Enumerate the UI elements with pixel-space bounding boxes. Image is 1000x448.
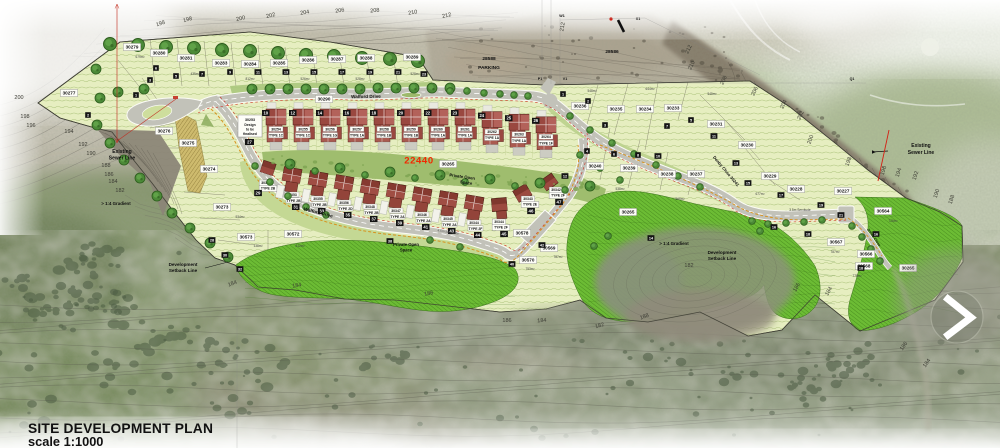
svg-text:30237: 30237 — [690, 172, 703, 177]
svg-text:25: 25 — [506, 116, 511, 121]
svg-text:30257: 30257 — [352, 127, 362, 131]
svg-text:30289: 30289 — [406, 55, 419, 60]
svg-text:28586: 28586 — [605, 49, 619, 55]
svg-text:TYPE 1A: TYPE 1A — [431, 134, 446, 138]
svg-text:30564: 30564 — [877, 209, 890, 214]
svg-text:30288: 30288 — [360, 56, 373, 61]
svg-text:Space: Space — [400, 247, 413, 252]
svg-text:16: 16 — [344, 110, 349, 115]
svg-text:TYPE 2F: TYPE 2F — [494, 226, 508, 230]
svg-text:TYPE 1A: TYPE 1A — [512, 139, 527, 143]
svg-text:30256: 30256 — [325, 127, 335, 131]
svg-text:19: 19 — [368, 70, 372, 74]
svg-text:30344: 30344 — [469, 221, 479, 225]
svg-text:30230: 30230 — [741, 143, 754, 148]
svg-text:16: 16 — [772, 225, 776, 229]
svg-text:TYPE 2F: TYPE 2F — [469, 227, 483, 231]
svg-text:30570: 30570 — [522, 258, 535, 263]
svg-text:545m²: 545m² — [707, 92, 716, 96]
svg-text:30253: 30253 — [245, 118, 255, 122]
svg-text:435m²: 435m² — [190, 72, 199, 76]
svg-text:TYPE 2A: TYPE 2A — [390, 215, 405, 219]
svg-text:787m²: 787m² — [830, 250, 839, 254]
svg-text:812m²: 812m² — [245, 77, 254, 81]
svg-text:15: 15 — [746, 181, 750, 185]
svg-text:30290: 30290 — [318, 97, 331, 102]
svg-text:3: 3 — [604, 123, 606, 127]
svg-text:10: 10 — [656, 154, 660, 158]
svg-text:42: 42 — [540, 243, 544, 247]
svg-text:Existing: Existing — [911, 143, 930, 149]
svg-text:30347: 30347 — [391, 209, 401, 213]
svg-text:Q1: Q1 — [850, 77, 855, 81]
svg-text:18: 18 — [806, 232, 810, 236]
svg-text:27: 27 — [247, 140, 252, 145]
svg-text:528m²: 528m² — [410, 72, 419, 76]
svg-text:17: 17 — [779, 193, 783, 197]
svg-text:1: 1 — [562, 92, 564, 96]
svg-text:30286: 30286 — [302, 58, 315, 63]
svg-text:22440: 22440 — [404, 156, 433, 167]
svg-text:30265: 30265 — [622, 210, 635, 215]
svg-text:TYPE 1A: TYPE 1A — [458, 134, 473, 138]
svg-text:6: 6 — [613, 152, 615, 156]
svg-text:30273: 30273 — [216, 205, 229, 210]
svg-text:30573: 30573 — [240, 235, 253, 240]
svg-text:TYPE 1C: TYPE 1C — [269, 134, 284, 138]
svg-text:30285: 30285 — [273, 61, 286, 66]
svg-text:812m²: 812m² — [295, 244, 304, 248]
svg-text:934m²: 934m² — [235, 215, 244, 219]
svg-text:TYPE 2B: TYPE 2B — [261, 187, 276, 191]
svg-text:30566: 30566 — [860, 252, 873, 257]
svg-text:188: 188 — [101, 163, 110, 169]
svg-text:finalised: finalised — [243, 132, 257, 136]
svg-text:38: 38 — [388, 239, 392, 243]
svg-text:18: 18 — [371, 110, 376, 115]
svg-text:5: 5 — [175, 74, 177, 78]
svg-text:Development: Development — [169, 262, 198, 267]
svg-text:787m²: 787m² — [553, 255, 562, 259]
svg-text:15: 15 — [312, 70, 316, 74]
svg-text:528m²: 528m² — [355, 77, 364, 81]
svg-text:198: 198 — [20, 114, 29, 120]
svg-text:30356: 30356 — [339, 201, 349, 205]
svg-text:2: 2 — [587, 99, 589, 103]
svg-text:30258: 30258 — [379, 127, 389, 131]
svg-text:TYPE 1G: TYPE 1G — [323, 134, 338, 138]
svg-text:30275: 30275 — [182, 141, 195, 146]
svg-text:39: 39 — [397, 221, 402, 226]
svg-text:13: 13 — [734, 161, 738, 165]
svg-text:TYPE 1B: TYPE 1B — [404, 134, 419, 138]
svg-text:7: 7 — [666, 124, 668, 128]
svg-text:TYPE 2F: TYPE 2F — [551, 194, 565, 198]
svg-text:17: 17 — [340, 70, 344, 74]
svg-text:30255: 30255 — [298, 127, 308, 131]
svg-text:11: 11 — [712, 134, 716, 138]
svg-text:1: 1 — [135, 93, 137, 97]
svg-text:41: 41 — [423, 225, 428, 230]
svg-text:12: 12 — [563, 174, 567, 178]
svg-text:186: 186 — [104, 172, 113, 178]
svg-text:30342: 30342 — [551, 188, 561, 192]
svg-text:Design: Design — [244, 123, 255, 127]
svg-text:> 1:4 Gradient: > 1:4 Gradient — [659, 241, 689, 246]
svg-text:TYPE 2B: TYPE 2B — [364, 211, 379, 215]
svg-text:30277: 30277 — [63, 91, 76, 96]
svg-text:TYPE 2D: TYPE 2D — [338, 207, 353, 211]
svg-text:30254: 30254 — [271, 127, 281, 131]
svg-text:184: 184 — [292, 282, 302, 289]
svg-text:TYPE 2B: TYPE 2B — [312, 203, 327, 207]
svg-text:47: 47 — [557, 200, 562, 205]
svg-text:3: 3 — [149, 78, 151, 82]
svg-text:6: 6 — [155, 66, 157, 70]
svg-text:TYPE 2E: TYPE 2E — [523, 203, 538, 207]
svg-text:192: 192 — [78, 142, 87, 148]
svg-text:21: 21 — [839, 213, 843, 217]
svg-text:30234: 30234 — [639, 107, 652, 112]
svg-text:30567: 30567 — [830, 240, 843, 245]
svg-text:30259: 30259 — [406, 127, 416, 131]
svg-text:726m²: 726m² — [888, 219, 897, 223]
svg-text:23: 23 — [452, 110, 457, 115]
svg-text:35: 35 — [345, 213, 350, 218]
svg-text:32: 32 — [238, 267, 242, 271]
svg-text:200: 200 — [14, 95, 23, 101]
svg-text:28: 28 — [210, 238, 214, 242]
svg-text:30284: 30284 — [244, 62, 257, 67]
svg-text:to be: to be — [246, 127, 254, 131]
svg-text:40: 40 — [510, 262, 514, 266]
svg-text:30344: 30344 — [494, 220, 504, 224]
svg-text:X1: X1 — [636, 17, 640, 21]
svg-text:548m²: 548m² — [587, 89, 596, 93]
svg-text:TYPE 2A: TYPE 2A — [416, 219, 431, 223]
svg-text:526m²: 526m² — [300, 77, 309, 81]
svg-text:30578: 30578 — [516, 231, 529, 236]
svg-text:194: 194 — [64, 129, 73, 135]
svg-text:7: 7 — [201, 72, 203, 76]
svg-text:679m²: 679m² — [135, 55, 144, 59]
svg-text:30348: 30348 — [365, 205, 375, 209]
svg-text:29: 29 — [256, 191, 261, 196]
svg-text:Development: Development — [708, 250, 737, 255]
svg-text:8: 8 — [637, 153, 639, 157]
svg-text:Setback Line: Setback Line — [169, 268, 198, 273]
svg-text:565m²: 565m² — [675, 197, 684, 201]
svg-text:TYPE 2A: TYPE 2A — [442, 223, 457, 227]
svg-text:Sewer Line: Sewer Line — [109, 156, 136, 162]
svg-text:30240: 30240 — [589, 164, 602, 169]
svg-text:45: 45 — [502, 232, 507, 237]
svg-text:18: 18 — [859, 266, 863, 270]
svg-text:30231: 30231 — [710, 122, 723, 127]
svg-text:5: 5 — [690, 118, 692, 122]
svg-text:30: 30 — [223, 253, 227, 257]
svg-text:21: 21 — [396, 70, 400, 74]
svg-text:30346: 30346 — [417, 213, 427, 217]
svg-text:9: 9 — [229, 70, 231, 74]
svg-text:30263: 30263 — [514, 133, 524, 137]
svg-text:3.5m Servitude: 3.5m Servitude — [789, 208, 811, 212]
svg-text:Existing: Existing — [112, 149, 131, 155]
svg-text:23: 23 — [422, 72, 426, 76]
svg-text:TYPE 1F: TYPE 1F — [539, 141, 553, 145]
svg-text:30281: 30281 — [180, 56, 193, 61]
svg-text:scale 1:1000: scale 1:1000 — [28, 434, 103, 448]
svg-text:V1: V1 — [563, 77, 567, 81]
svg-text:30229: 30229 — [764, 174, 777, 179]
svg-text:TYPE 1B: TYPE 1B — [377, 134, 392, 138]
svg-text:37: 37 — [371, 217, 376, 222]
svg-text:206: 206 — [335, 7, 345, 14]
svg-text:Walford Drive: Walford Drive — [351, 94, 381, 100]
svg-text:184: 184 — [108, 179, 117, 185]
svg-text:Setback Line: Setback Line — [708, 256, 737, 261]
svg-text:30343: 30343 — [523, 197, 533, 201]
svg-text:Private Open: Private Open — [393, 242, 419, 247]
svg-text:W1: W1 — [559, 14, 564, 18]
svg-text:30572: 30572 — [287, 232, 300, 237]
svg-text:19: 19 — [819, 203, 823, 207]
svg-text:22: 22 — [425, 110, 430, 115]
svg-text:12: 12 — [290, 110, 295, 115]
svg-text:Sewer Line: Sewer Line — [908, 150, 935, 156]
svg-text:30264: 30264 — [541, 135, 551, 139]
svg-text:190: 190 — [86, 151, 95, 157]
svg-text:TYPE 1C: TYPE 1C — [296, 134, 311, 138]
svg-text:30283: 30283 — [215, 61, 228, 66]
svg-text:26: 26 — [533, 118, 538, 123]
svg-text:30265: 30265 — [442, 162, 455, 167]
svg-text:30280: 30280 — [153, 51, 166, 56]
svg-text:30228: 30228 — [790, 187, 803, 192]
svg-text:184: 184 — [537, 318, 547, 325]
svg-text:30236: 30236 — [574, 104, 587, 109]
svg-text:538m²: 538m² — [615, 187, 624, 191]
svg-text:30279: 30279 — [126, 45, 139, 50]
svg-text:30261: 30261 — [460, 127, 470, 131]
svg-text:11: 11 — [256, 70, 260, 74]
svg-text:30355: 30355 — [313, 197, 323, 201]
svg-text:182: 182 — [115, 188, 124, 194]
svg-text:TYPE 1A: TYPE 1A — [485, 136, 500, 140]
svg-text:778m²: 778m² — [852, 274, 861, 278]
svg-text:30238: 30238 — [661, 172, 674, 177]
svg-text:30239: 30239 — [623, 166, 636, 171]
svg-text:P1: P1 — [538, 77, 542, 81]
svg-text:753m²: 753m² — [525, 267, 534, 271]
svg-text:24: 24 — [479, 113, 484, 118]
svg-text:31: 31 — [293, 205, 298, 210]
svg-text:PARKING: PARKING — [478, 65, 500, 71]
svg-text:30233: 30233 — [667, 106, 680, 111]
svg-text:677m²: 677m² — [755, 192, 764, 196]
svg-text:44: 44 — [475, 233, 480, 238]
svg-text:644m²: 644m² — [645, 87, 654, 91]
svg-text:20: 20 — [398, 110, 403, 115]
svg-text:TYPE 1A: TYPE 1A — [350, 134, 365, 138]
svg-text:30262: 30262 — [487, 130, 497, 134]
svg-text:30274: 30274 — [203, 167, 216, 172]
svg-text:30276: 30276 — [158, 129, 171, 134]
svg-text:186: 186 — [502, 318, 511, 324]
svg-text:30260: 30260 — [433, 127, 443, 131]
svg-text:2: 2 — [87, 113, 89, 117]
svg-text:196: 196 — [26, 123, 35, 129]
svg-text:30345: 30345 — [443, 217, 453, 221]
svg-text:14: 14 — [317, 110, 322, 115]
svg-text:30287: 30287 — [331, 57, 344, 62]
svg-text:46: 46 — [529, 209, 534, 214]
svg-text:28588: 28588 — [482, 56, 496, 62]
svg-text:182: 182 — [684, 263, 693, 269]
svg-text:208: 208 — [370, 8, 380, 15]
svg-text:> 1:4 Gradient: > 1:4 Gradient — [101, 201, 131, 206]
svg-text:10: 10 — [263, 110, 268, 115]
svg-text:30227: 30227 — [837, 189, 850, 194]
svg-text:138m²: 138m² — [253, 244, 262, 248]
svg-text:30235: 30235 — [610, 107, 623, 112]
svg-text:13: 13 — [284, 70, 288, 74]
